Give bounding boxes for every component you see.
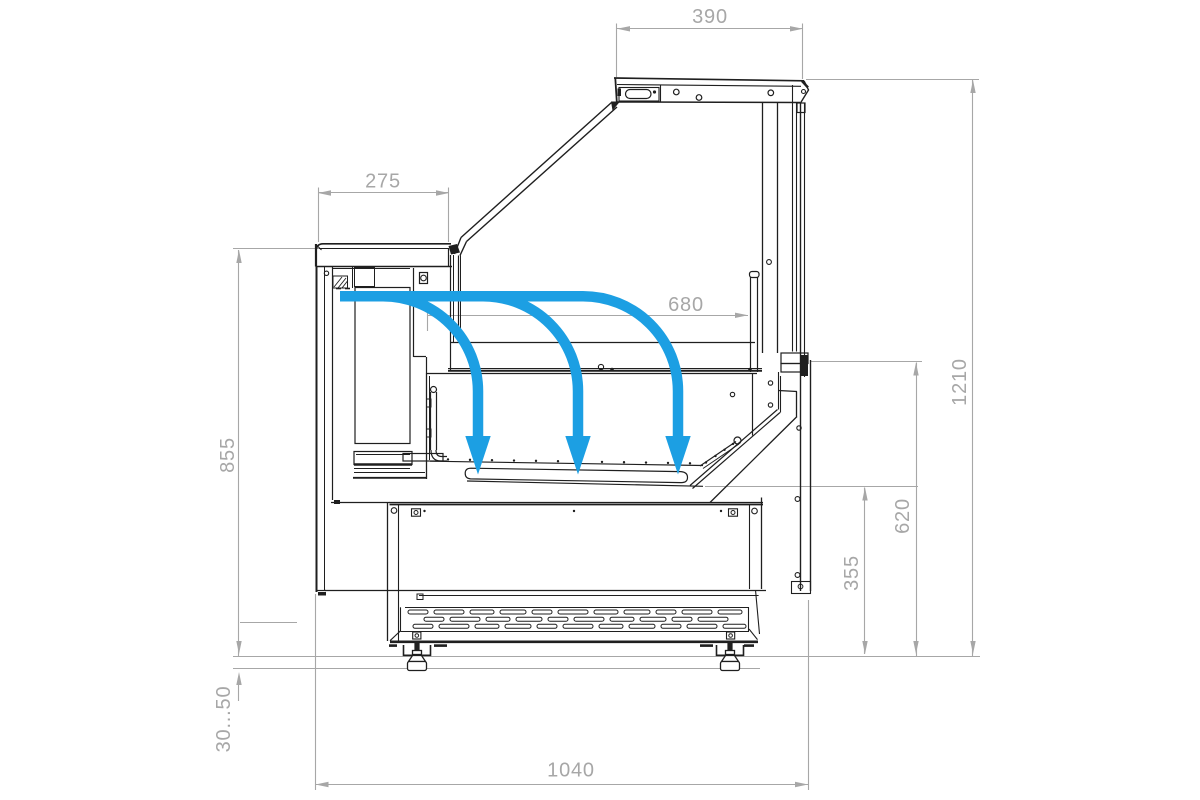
- svg-text:680: 680: [668, 294, 704, 316]
- svg-text:1040: 1040: [547, 760, 595, 782]
- svg-text:855: 855: [217, 437, 239, 473]
- svg-text:355: 355: [841, 555, 863, 591]
- svg-text:1210: 1210: [949, 358, 971, 406]
- svg-text:620: 620: [892, 498, 914, 534]
- svg-text:30...50: 30...50: [213, 686, 235, 753]
- svg-text:275: 275: [365, 171, 401, 193]
- svg-text:390: 390: [692, 6, 728, 28]
